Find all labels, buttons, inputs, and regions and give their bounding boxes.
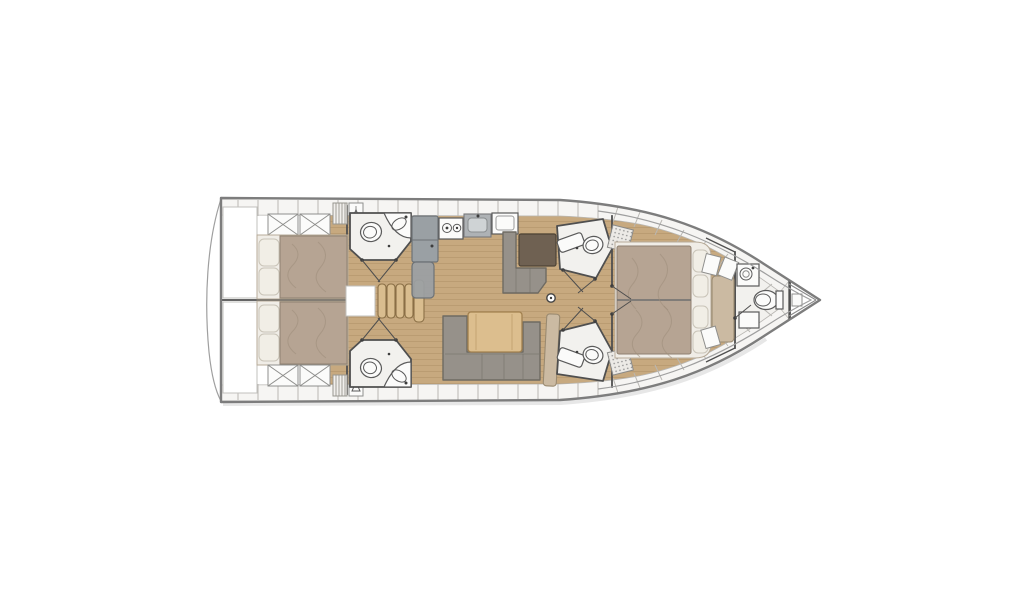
pillow [693, 306, 708, 328]
galley-cabinet [412, 262, 434, 298]
pillow [259, 268, 279, 295]
pillow [259, 305, 279, 332]
double-berth-mattress [280, 236, 347, 298]
pillow [693, 275, 708, 297]
galley-sink [468, 218, 487, 232]
forward-cabin [615, 242, 739, 358]
swim-platform [207, 199, 221, 401]
chart-table [519, 234, 556, 266]
step-tread [387, 284, 395, 318]
pillow [259, 239, 279, 266]
mast-post [547, 294, 555, 302]
toilet-tank [776, 291, 783, 309]
yacht-floor-plan-canvas [0, 0, 1024, 600]
toilet [754, 291, 778, 310]
vanity-counter [739, 312, 759, 328]
double-berth-mattress [280, 302, 347, 364]
head-aft-starboard [350, 340, 411, 387]
step-tread [396, 284, 404, 318]
yacht-deck-plan [0, 0, 1024, 600]
head-aft-port [350, 213, 411, 260]
pillow [259, 334, 279, 361]
step-tread [378, 284, 386, 318]
aft-cabin-starboard [223, 301, 363, 396]
fridge [412, 216, 438, 262]
aft-cabin-port [223, 203, 363, 299]
